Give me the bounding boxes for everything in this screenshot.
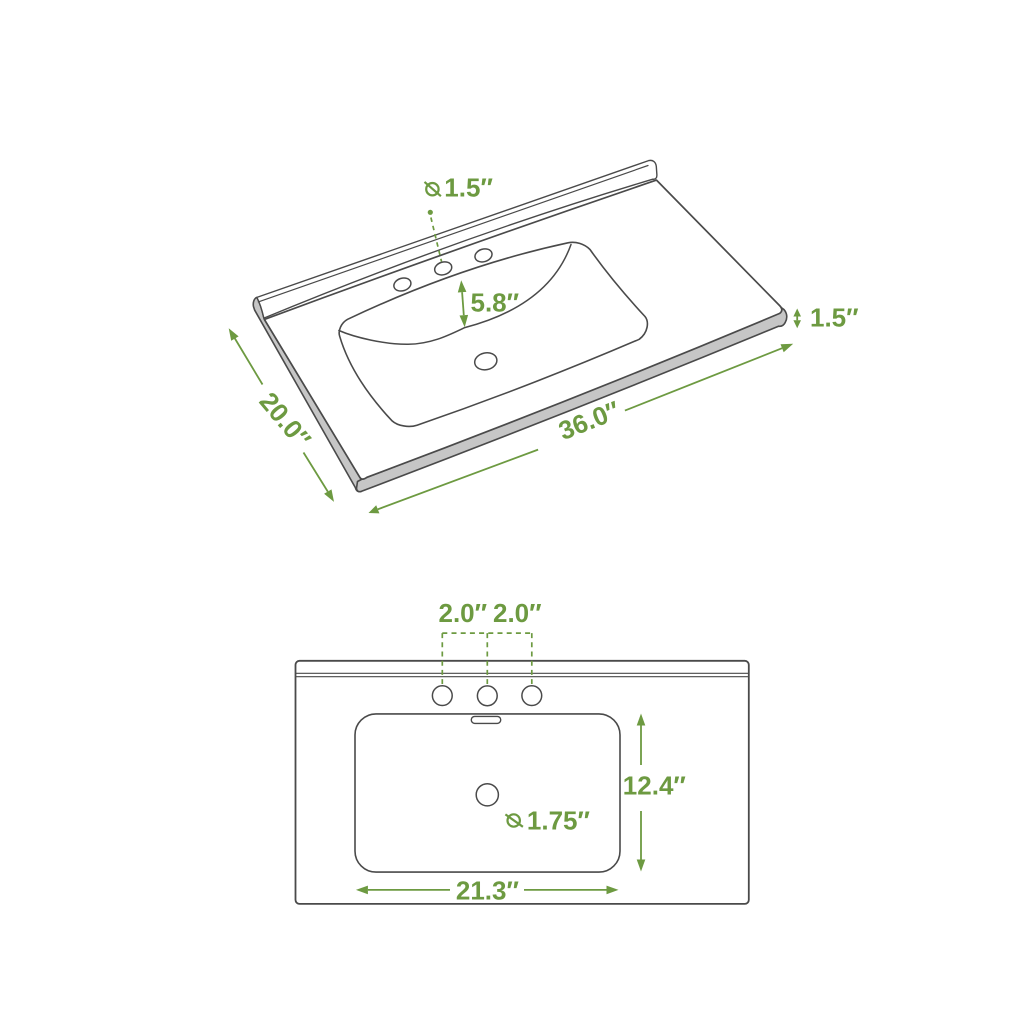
svg-text:1.5″: 1.5″ (444, 173, 493, 203)
svg-text:5.8″: 5.8″ (471, 288, 520, 318)
svg-text:2.0″: 2.0″ (493, 598, 542, 628)
svg-text:2.0″: 2.0″ (438, 598, 487, 628)
svg-text:1.5″: 1.5″ (810, 303, 859, 333)
svg-text:12.4″: 12.4″ (623, 770, 686, 800)
svg-text:1.75″: 1.75″ (527, 805, 590, 835)
svg-text:21.3″: 21.3″ (456, 876, 519, 906)
